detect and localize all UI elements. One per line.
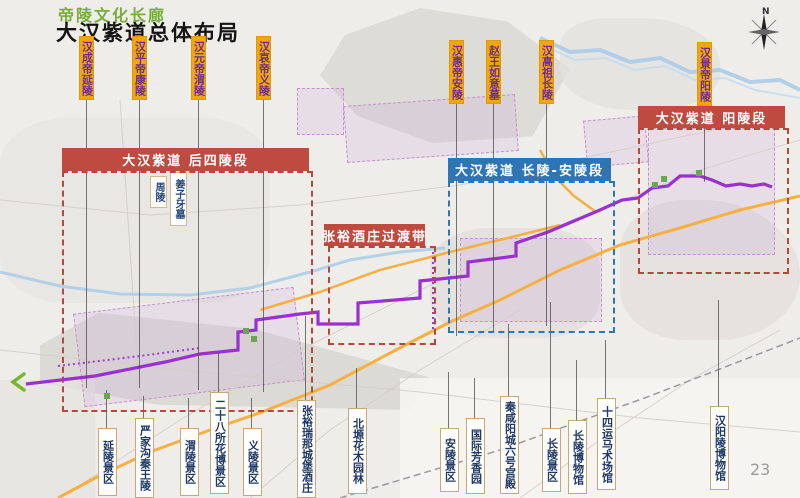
site-label: 汉阳陵博物馆 — [710, 406, 729, 490]
map-page: 帝陵文化长廊 大汉紫道总体布局 N 大汉紫道 后四陵段张裕酒庄过渡带大汉紫道 长… — [0, 0, 800, 498]
site-leader-line — [474, 378, 475, 418]
section-banner: 大汉紫道 后四陵段 — [62, 148, 309, 171]
section-box — [328, 246, 436, 345]
tomb-label: 汉平帝康陵 — [132, 36, 147, 100]
site-leader-line — [356, 368, 357, 408]
tomb-label: 汉元帝渭陵 — [191, 36, 206, 100]
site-label: 延陵景区 — [98, 428, 117, 496]
site-leader-line — [448, 372, 449, 428]
site-leader-line — [718, 300, 719, 406]
tomb-label: 汉惠帝安陵 — [449, 40, 464, 104]
tomb-label: 汉成帝延陵 — [79, 36, 94, 100]
site-label: 安陵景区 — [440, 428, 459, 492]
site-label: 国际芳香园 — [466, 418, 485, 494]
site-label: 二十八所花博景区 — [210, 392, 229, 494]
site-label: 长陵景区 — [542, 428, 561, 492]
tomb-label: 汉高祖长陵 — [539, 40, 554, 104]
section-banner: 大汉紫道 长陵-安陵段 — [448, 158, 611, 181]
site-leader-line — [576, 360, 577, 420]
site-label: 十四运马术场馆 — [597, 398, 616, 490]
site-leader-line — [605, 340, 606, 398]
site-label: 渭陵景区 — [180, 428, 199, 496]
site-label: 严家沟秦王陵 — [135, 418, 154, 498]
tomb-label: 汉景帝阳陵 — [697, 42, 712, 106]
site-label: 北塬花木园林 — [348, 408, 367, 494]
tomb-label: 赵王如意墓 — [486, 40, 501, 104]
section-box — [638, 128, 789, 274]
page-number: 23 — [750, 460, 770, 479]
section-box — [448, 181, 615, 333]
site-label: 长陵博物馆 — [568, 420, 587, 494]
site-label: 秦咸阳城六号宫殿 — [500, 396, 519, 494]
tomb-label: 汉哀帝义陵 — [256, 36, 271, 100]
section-banner: 张裕酒庄过渡带 — [324, 224, 425, 246]
compass-north-label: N — [762, 7, 770, 17]
site-leader-line — [508, 324, 509, 396]
section-banner: 大汉紫道 阳陵段 — [638, 106, 785, 128]
route-start-arrow-icon — [13, 374, 24, 390]
site-label: 张裕瑞那城堡酒庄 — [297, 400, 316, 498]
section-box — [62, 171, 313, 412]
compass-icon: N — [742, 4, 786, 52]
site-label: 义陵景区 — [243, 428, 262, 496]
